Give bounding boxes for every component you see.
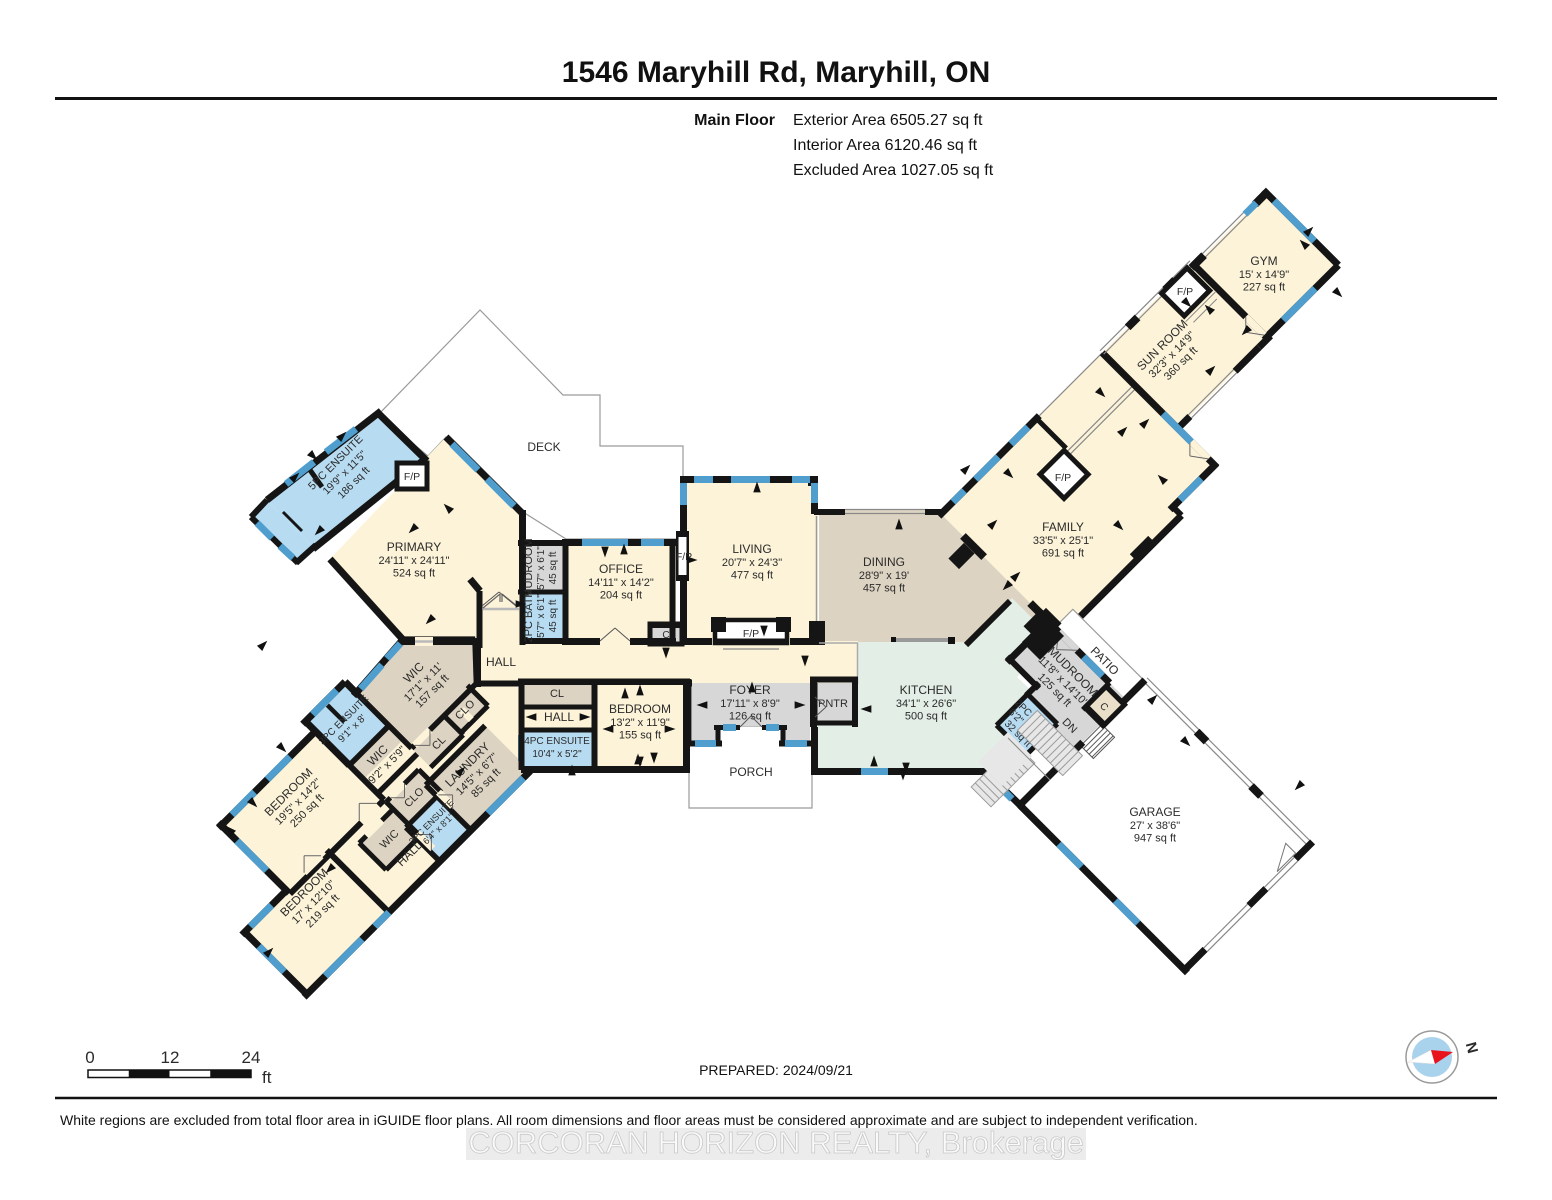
svg-text:F/P: F/P	[1055, 472, 1071, 484]
svg-text:BEDROOM: BEDROOM	[609, 702, 671, 716]
svg-text:204 sq ft: 204 sq ft	[600, 590, 642, 602]
svg-text:12: 12	[161, 1048, 180, 1067]
svg-text:524 sq ft: 524 sq ft	[393, 568, 435, 580]
svg-text:Main Floor: Main Floor	[694, 112, 775, 129]
svg-text:500 sq ft: 500 sq ft	[905, 711, 947, 723]
svg-text:HALL: HALL	[544, 710, 574, 724]
svg-text:PORCH: PORCH	[729, 765, 772, 779]
svg-text:4PC ENSUITE: 4PC ENSUITE	[524, 736, 590, 747]
svg-text:F/P: F/P	[743, 628, 759, 640]
svg-text:F/P: F/P	[1177, 286, 1193, 298]
svg-text:15' x 14'9": 15' x 14'9"	[1239, 269, 1289, 281]
svg-text:OFFICE: OFFICE	[599, 562, 643, 576]
svg-text:17'11" x 8'9": 17'11" x 8'9"	[720, 698, 780, 710]
svg-text:Excluded Area 1027.05 sq ft: Excluded Area 1027.05 sq ft	[793, 162, 994, 179]
svg-text:28'9" x 19': 28'9" x 19'	[859, 570, 909, 582]
svg-text:13'2" x 11'9": 13'2" x 11'9"	[610, 717, 670, 729]
svg-text:5'7" x 6'1": 5'7" x 6'1"	[536, 546, 547, 590]
svg-text:Exterior Area 6505.27 sq ft: Exterior Area 6505.27 sq ft	[793, 112, 983, 129]
svg-text:45 sq ft: 45 sq ft	[548, 599, 559, 632]
svg-text:45 sq ft: 45 sq ft	[548, 551, 559, 584]
svg-text:34'1" x 26'6": 34'1" x 26'6"	[896, 698, 956, 710]
svg-text:2PC BATH: 2PC BATH	[523, 589, 535, 642]
svg-text:947 sq ft: 947 sq ft	[1134, 833, 1176, 845]
svg-text:DINING: DINING	[863, 555, 905, 569]
svg-text:CL: CL	[550, 688, 564, 700]
svg-text:PREPARED: 2024/09/21: PREPARED: 2024/09/21	[699, 1062, 853, 1078]
svg-text:PRIMARY: PRIMARY	[387, 540, 441, 554]
svg-text:Interior Area 6120.46 sq ft: Interior Area 6120.46 sq ft	[793, 137, 978, 154]
svg-text:1546 Maryhill Rd, Maryhill, ON: 1546 Maryhill Rd, Maryhill, ON	[562, 56, 990, 89]
svg-text:5'7" x 6'1": 5'7" x 6'1"	[536, 594, 547, 638]
svg-text:27' x 38'6": 27' x 38'6"	[1130, 820, 1180, 832]
svg-text:KITCHEN: KITCHEN	[900, 683, 953, 697]
svg-text:457 sq ft: 457 sq ft	[863, 583, 905, 595]
svg-text:CORCORAN HORIZON REALTY, Broke: CORCORAN HORIZON REALTY, Brokerage	[468, 1125, 1084, 1160]
svg-text:MUDROOM: MUDROOM	[523, 538, 535, 597]
svg-text:LIVING: LIVING	[732, 542, 771, 556]
svg-text:HALL: HALL	[486, 655, 516, 669]
svg-text:24'11" x 24'11": 24'11" x 24'11"	[379, 555, 450, 567]
svg-text:24: 24	[242, 1048, 261, 1067]
svg-text:477 sq ft: 477 sq ft	[731, 570, 773, 582]
svg-text:F/P: F/P	[404, 471, 420, 483]
svg-text:33'5" x 25'1": 33'5" x 25'1"	[1033, 535, 1093, 547]
svg-text:FAMILY: FAMILY	[1042, 520, 1084, 534]
svg-text:155 sq ft: 155 sq ft	[619, 730, 661, 742]
svg-text:0: 0	[85, 1048, 94, 1067]
svg-text:20'7" x 24'3": 20'7" x 24'3"	[722, 557, 782, 569]
svg-text:10'4" x 5'2": 10'4" x 5'2"	[532, 749, 582, 760]
svg-text:GYM: GYM	[1250, 254, 1277, 268]
svg-text:14'11" x 14'2": 14'11" x 14'2"	[588, 577, 654, 589]
svg-text:ft: ft	[262, 1068, 272, 1087]
svg-text:227 sq ft: 227 sq ft	[1243, 282, 1285, 294]
svg-text:GARAGE: GARAGE	[1129, 805, 1180, 819]
svg-text:DECK: DECK	[527, 440, 560, 454]
svg-text:691 sq ft: 691 sq ft	[1042, 548, 1084, 560]
